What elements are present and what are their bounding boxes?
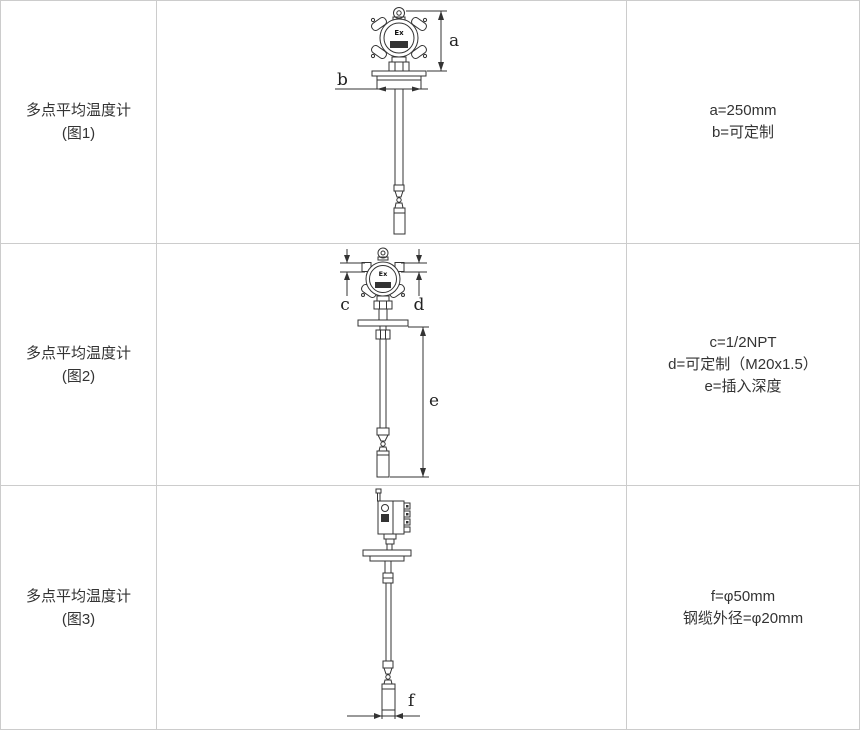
figure-1-diagram: a Ex — [157, 1, 626, 243]
dim-label-d: d — [414, 295, 425, 315]
figure-caption: (图1) — [62, 122, 95, 145]
ex-marking: Ex — [394, 29, 404, 37]
row3-diagram-cell: f — [157, 486, 627, 729]
product-name: 多点平均温度计 — [26, 342, 131, 365]
dim-label-a: a — [449, 31, 459, 51]
row1-diagram-cell: a Ex — [157, 1, 627, 244]
transmitter-head: Ex — [370, 8, 428, 72]
mounting-flange — [372, 71, 426, 89]
probe-and-weight — [382, 561, 395, 710]
row3-label-cell: 多点平均温度计 (图3) — [1, 486, 157, 729]
probe-and-weight — [394, 89, 405, 234]
dimension-d: d — [401, 249, 427, 315]
dim-label-f: f — [408, 691, 416, 711]
row2-label-cell: 多点平均温度计 (图2) — [1, 244, 157, 486]
spec-line: f=φ50mm — [711, 586, 775, 608]
dim-label-e: e — [429, 391, 439, 411]
row3-spec-cell: f=φ50mm 钢缆外径=φ20mm — [627, 486, 859, 729]
mounting-flange — [363, 550, 411, 561]
dimension-c: c — [340, 249, 365, 315]
figure-3-diagram: f — [157, 486, 626, 729]
terminal-head — [376, 489, 410, 550]
dimension-e: e — [390, 327, 439, 477]
row2-spec-cell: c=1/2NPT d=可定制（M20x1.5） e=插入深度 — [627, 244, 859, 486]
spec-line: d=可定制（M20x1.5） — [668, 354, 818, 376]
spec-table: 多点平均温度计 (图1) a — [0, 0, 860, 730]
figure-caption: (图2) — [62, 365, 95, 388]
row2-diagram-cell: c d — [157, 244, 627, 486]
display-window — [390, 41, 408, 48]
dimension-b: b — [335, 70, 428, 92]
figure-caption: (图3) — [62, 608, 95, 631]
dim-label-c: c — [340, 295, 350, 315]
ex-marking: Ex — [379, 270, 388, 278]
transmitter-head: Ex — [360, 248, 406, 320]
spec-line: b=可定制 — [712, 122, 774, 144]
product-name: 多点平均温度计 — [26, 99, 131, 122]
spec-line: 钢缆外径=φ20mm — [683, 608, 803, 630]
spec-line: e=插入深度 — [704, 376, 781, 398]
mounting-flange — [358, 320, 408, 326]
spec-line: c=1/2NPT — [709, 332, 776, 354]
row1-spec-cell: a=250mm b=可定制 — [627, 1, 859, 244]
spec-line: a=250mm — [709, 100, 776, 122]
probe-and-weight — [376, 326, 390, 477]
product-name: 多点平均温度计 — [26, 585, 131, 608]
dim-label-b: b — [337, 70, 348, 90]
display-window — [375, 282, 391, 288]
row1-label-cell: 多点平均温度计 (图1) — [1, 1, 157, 244]
figure-2-diagram: c d — [157, 244, 626, 485]
dimension-f: f — [347, 691, 420, 719]
